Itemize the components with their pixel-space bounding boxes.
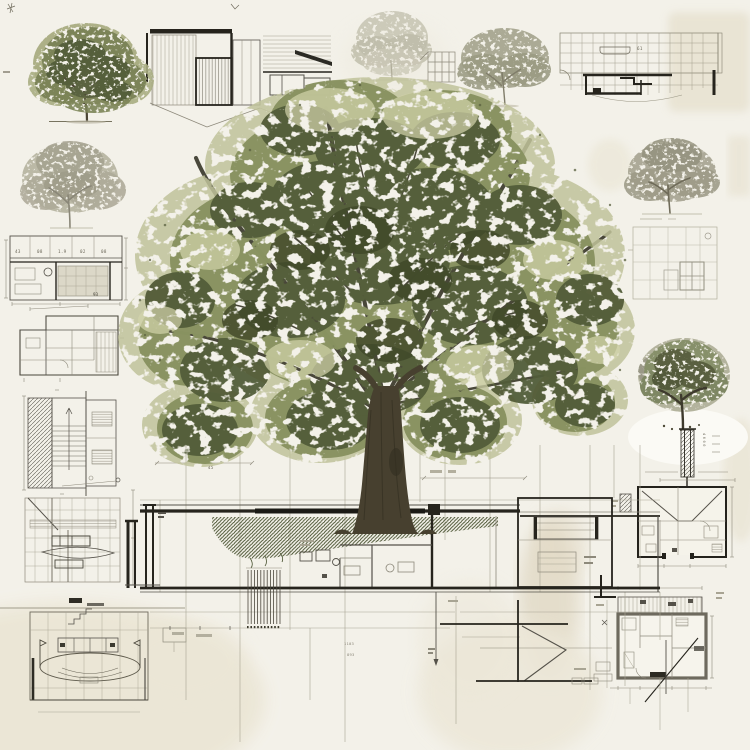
- plan-annotation: 93: [93, 292, 99, 297]
- left-floor-plan-b: [20, 304, 124, 382]
- room-label: 43: [15, 249, 21, 254]
- right-tree-sketch: [624, 138, 720, 214]
- room-label: 02: [80, 249, 86, 254]
- collage-canvas: 61: [0, 0, 750, 750]
- room-label: 1.9: [58, 249, 67, 254]
- top-left-tree: [28, 23, 154, 124]
- large-tree: [118, 77, 635, 534]
- louver-strip: [246, 568, 282, 628]
- left-stair-plan: [22, 390, 116, 496]
- left-detail-plan: [25, 478, 135, 585]
- dimension-label: 893: [347, 652, 354, 657]
- left-tree-sketch: [20, 141, 126, 228]
- room-label: 08: [37, 249, 43, 254]
- plan-annotation: 61: [637, 46, 643, 51]
- bottom-right-floor-plan: [594, 586, 724, 730]
- dimension-label: 4000: [702, 433, 706, 448]
- left-floor-plan-a: 43 08 1.9 02 08 93: [4, 236, 128, 306]
- architectural-collage: 61: [0, 0, 750, 750]
- dimension-label: 1103: [344, 641, 354, 646]
- grass-hatch: [212, 517, 498, 559]
- room-label: 08: [101, 249, 107, 254]
- right-faint-floor-plan: [628, 219, 717, 299]
